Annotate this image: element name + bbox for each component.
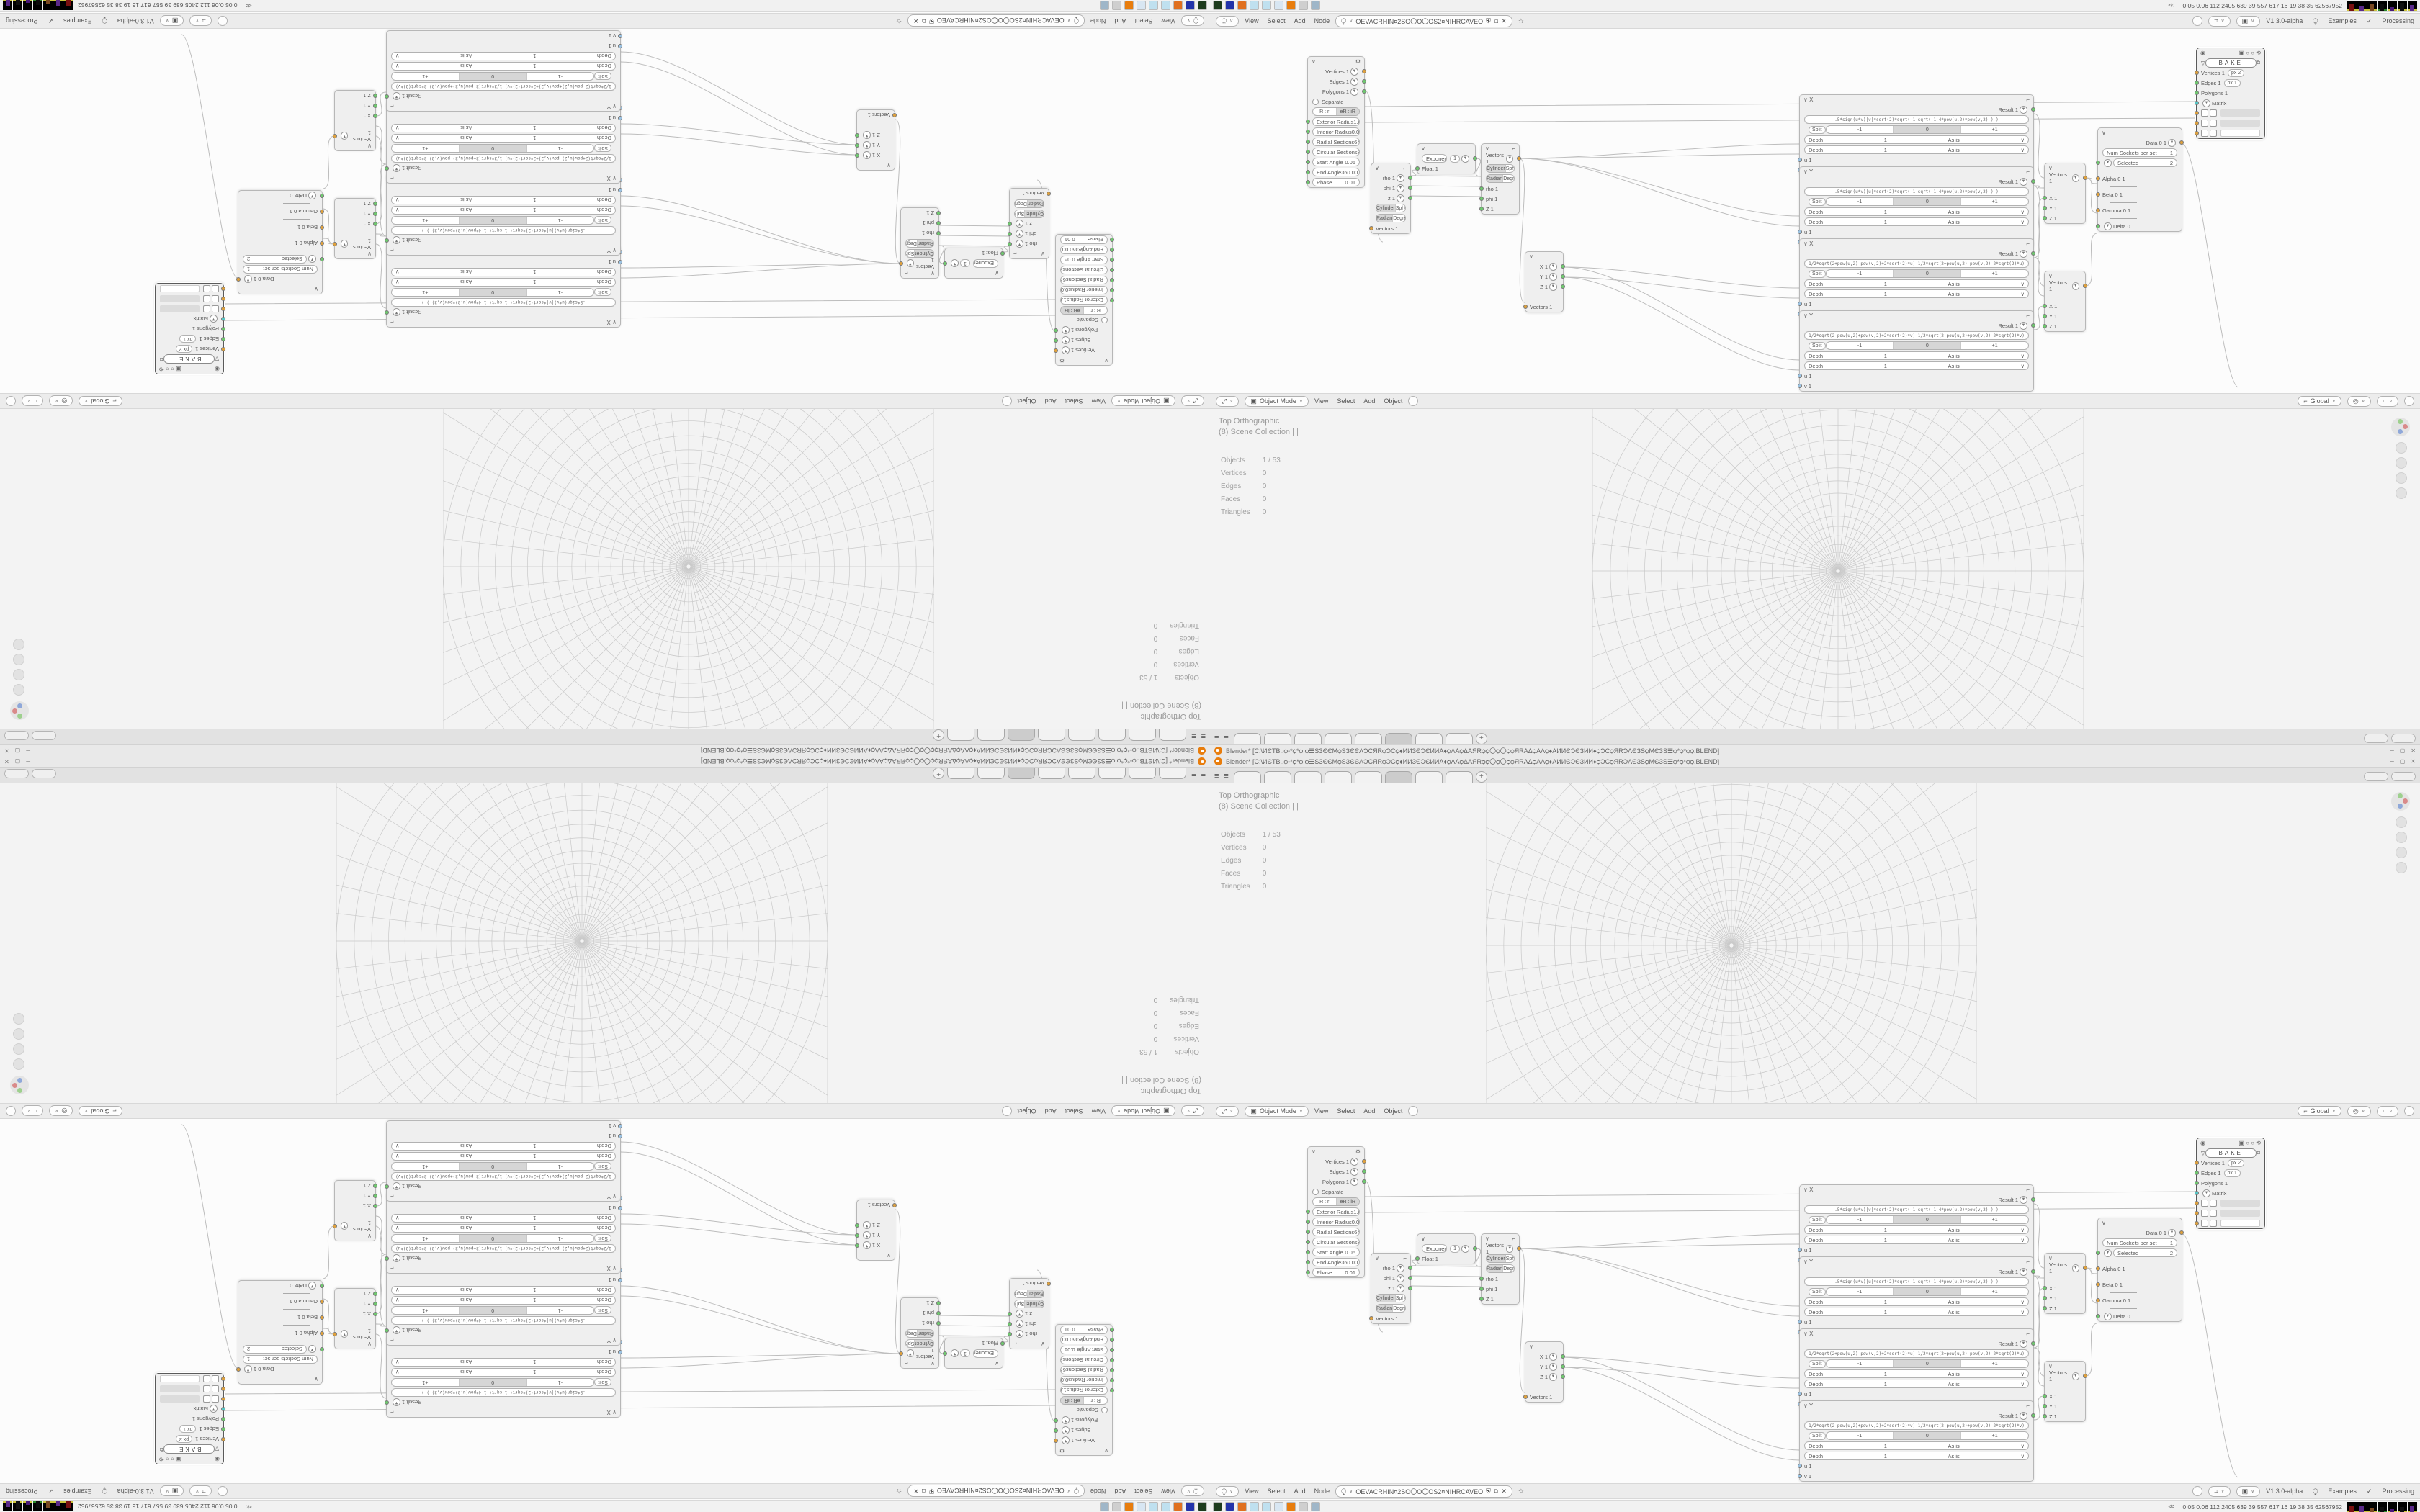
socket-dropdown-icon[interactable]: ▼	[863, 1242, 871, 1250]
node-menu-add[interactable]: Add	[1114, 1488, 1126, 1495]
bake-button[interactable]: BAKE	[2205, 58, 2257, 68]
workspace-tab[interactable]	[947, 768, 974, 779]
node-socket[interactable]	[2083, 1374, 2087, 1378]
menu-icon[interactable]: ≡	[1224, 772, 1228, 780]
preview-toggle-button[interactable]: ▣∨	[160, 1486, 184, 1497]
node-socket[interactable]	[1000, 1341, 1005, 1346]
node-socket[interactable]	[1110, 288, 1114, 292]
node-socket[interactable]	[1479, 197, 1484, 201]
node-socket[interactable]	[855, 1223, 859, 1228]
node-bake-selected[interactable]: ◉▣ ○ ○ ⟲▽BAKE⧉Vertices 1px 2Edges 1px 1P…	[2196, 1138, 2265, 1229]
viewlayer-selector[interactable]	[4, 731, 29, 740]
node-socket[interactable]	[1362, 1159, 1366, 1164]
node-socket[interactable]	[2096, 1314, 2100, 1318]
node-editor[interactable]: ∨ ⚙Vertices 1▼Edges 1▼Polygons 1▼Separat…	[0, 1119, 1210, 1483]
socket-dropdown-icon[interactable]: ▼	[951, 260, 959, 268]
socket-dropdown-icon[interactable]: ▼	[863, 132, 871, 140]
snap-button[interactable]: ◎∨	[49, 396, 73, 407]
window-title-bar[interactable]: Blender* [C:\ИЄТВ..ѻ◦*ѻ*ѻ:ѻ☰ЅЗЄЄМѻЅЗЄЄΛϽ…	[1210, 756, 2420, 768]
socket-dropdown-icon[interactable]: ▼	[1016, 230, 1023, 238]
node[interactable]: ∨ Data 0 1▼Num Sockets per set1▼Selected…	[238, 190, 323, 294]
flame-icon[interactable]	[1173, 1502, 1183, 1511]
node-socket[interactable]	[2195, 1201, 2199, 1205]
viewport-menu-object[interactable]: Object	[1018, 1107, 1036, 1115]
node-socket[interactable]	[1561, 1374, 1565, 1379]
node-socket[interactable]	[1561, 1354, 1565, 1359]
workspace-tab[interactable]	[977, 768, 1005, 779]
node-socket[interactable]	[1798, 384, 1802, 388]
minimize-button[interactable]: ─	[2390, 758, 2394, 765]
viewport-menu-add[interactable]: Add	[1045, 1107, 1057, 1115]
workspace-tab[interactable]	[1385, 733, 1412, 744]
speaker-icon[interactable]	[1112, 1502, 1121, 1511]
node-socket[interactable]	[899, 1351, 903, 1356]
window-icon[interactable]	[1137, 1, 1146, 10]
copy-icon[interactable]: ⧉	[922, 17, 926, 25]
workspace-tab[interactable]	[1098, 768, 1126, 779]
node[interactable]: ∨ Vectors 1▼X 1Y 1Z 1	[2044, 271, 2086, 332]
node-socket[interactable]	[320, 1347, 324, 1351]
socket-dropdown-icon[interactable]: ▼	[244, 1366, 252, 1374]
socket-dropdown-icon[interactable]: ▼	[1397, 1274, 1404, 1282]
viewport-menu-select[interactable]: Select	[1337, 1107, 1355, 1115]
notepad-icon[interactable]	[1149, 1502, 1158, 1511]
node-socket[interactable]	[221, 1407, 225, 1411]
node-socket[interactable]	[1523, 1395, 1528, 1399]
socket-dropdown-icon[interactable]: ▼	[341, 240, 348, 248]
node-menu-add[interactable]: Add	[1294, 17, 1306, 24]
node-socket[interactable]	[936, 1301, 941, 1305]
zoom-tool-icon[interactable]	[2396, 816, 2407, 828]
workspace-tab[interactable]	[1385, 771, 1412, 783]
workspace-tab[interactable]	[1159, 729, 1186, 741]
viewport-menu-object[interactable]: Object	[1384, 1107, 1402, 1115]
node[interactable]: ∨ Y⌐Result 1▼.5*sign(u*v)|u|*sqrt(2)*sqr…	[1799, 1256, 2034, 1338]
node-socket[interactable]	[1408, 1286, 1412, 1290]
node-socket[interactable]	[618, 1206, 622, 1210]
socket-dropdown-icon[interactable]: ▼	[210, 315, 218, 323]
node-tree-type-button[interactable]: ⧬∨	[1216, 16, 1239, 27]
node-socket[interactable]	[1008, 1332, 1012, 1336]
viewport-3d[interactable]: Top Orthographic (8) Scene Collection | …	[1210, 783, 2420, 1103]
node-bake-selected[interactable]: ◉▣ ○ ○ ⟲▽BAKE⧉Vertices 1px 2Edges 1px 1P…	[2196, 48, 2265, 139]
node[interactable]: ∨ ExponentialEaseIn∨1▼Float 1	[1417, 143, 1476, 174]
node[interactable]: ∨ Y⌐Result 1▼1/2*sqrt(2-pow(u,2)+pow(v,2…	[1799, 310, 2034, 392]
camera-view-icon[interactable]	[13, 1028, 24, 1040]
node-socket[interactable]	[373, 212, 377, 216]
node-socket[interactable]	[1110, 1368, 1114, 1372]
node[interactable]: ∨ X⌐Result 1▼.5*sign(u*v)|v|*sqrt(2)*sqr…	[386, 1336, 621, 1418]
node-socket[interactable]	[855, 1233, 859, 1238]
transform-orientation-selector[interactable]: ⌐Global∨	[2298, 1106, 2341, 1116]
node-tree-type-button[interactable]: ⧬∨	[1181, 16, 1204, 27]
node-socket[interactable]	[2031, 323, 2035, 328]
socket-dropdown-icon[interactable]: ▼	[308, 1346, 316, 1354]
node-socket[interactable]	[2031, 1197, 2035, 1202]
node-socket[interactable]	[221, 1397, 225, 1401]
node-menu-add[interactable]: Add	[1114, 17, 1126, 24]
node-socket[interactable]	[936, 1321, 941, 1326]
ortho-toggle-icon[interactable]	[2396, 487, 2407, 499]
node-socket[interactable]	[1110, 1338, 1114, 1342]
snap-button[interactable]: ◎∨	[2347, 1106, 2371, 1117]
viewport-menu-add[interactable]: Add	[1363, 1107, 1375, 1115]
node-socket[interactable]	[1054, 1439, 1058, 1443]
node-socket[interactable]	[2195, 71, 2199, 75]
socket-dropdown-icon[interactable]: ▼	[393, 93, 400, 101]
node-socket[interactable]	[1798, 374, 1802, 378]
workspace-tab[interactable]	[1264, 733, 1291, 744]
node[interactable]: ∨ ⌐Vectors 1▼CylinderSphereRadianDegreer…	[1481, 143, 1520, 215]
node[interactable]: ∨ ⚙Vertices 1▼Edges 1▼Polygons 1▼Separat…	[1055, 1324, 1113, 1456]
socket-dropdown-icon[interactable]: ▼	[1016, 1331, 1023, 1338]
node-socket[interactable]	[373, 1194, 377, 1198]
workspace-tab[interactable]	[1415, 771, 1443, 783]
node-socket[interactable]	[2096, 192, 2100, 197]
proportional-edit-button[interactable]: ⌗∨	[22, 1106, 43, 1117]
socket-dropdown-icon[interactable]: ▼	[1397, 1264, 1404, 1272]
add-workspace-button[interactable]: +	[933, 768, 944, 779]
viewport-menu-select[interactable]: Select	[1065, 1107, 1083, 1115]
socket-dropdown-icon[interactable]: ▼	[341, 1331, 348, 1338]
node-socket[interactable]	[892, 1203, 897, 1207]
socket-dropdown-icon[interactable]: ▼	[1397, 184, 1404, 192]
node-socket[interactable]	[2043, 304, 2047, 308]
monitor-icon[interactable]	[1311, 1, 1320, 10]
node-socket[interactable]	[1306, 1260, 1310, 1264]
node-socket[interactable]	[899, 261, 903, 266]
node-socket[interactable]	[1362, 1179, 1366, 1184]
node-socket[interactable]	[1008, 232, 1012, 236]
ortho-toggle-icon[interactable]	[2396, 862, 2407, 873]
node-socket[interactable]	[855, 153, 859, 158]
node-socket[interactable]	[373, 1302, 377, 1306]
workspace-tab[interactable]	[1234, 771, 1261, 783]
node[interactable]: ∨ Data 0 1▼Num Sockets per set1▼Selected…	[238, 1280, 323, 1385]
add-workspace-button[interactable]: +	[933, 729, 944, 741]
node-socket[interactable]	[373, 1292, 377, 1296]
node-socket[interactable]	[936, 1311, 941, 1315]
workspace-tab[interactable]	[1355, 771, 1382, 783]
node[interactable]: ∨ Data 0 1▼Num Sockets per set1▼Selected…	[2097, 127, 2182, 232]
copy-icon[interactable]: ⧉	[1494, 17, 1498, 25]
node-socket[interactable]	[618, 260, 622, 264]
node-socket[interactable]	[936, 231, 941, 235]
node[interactable]: ∨ ⌐Vectors 1▼CylinderSphereRadianDegreer…	[900, 207, 939, 279]
node-socket[interactable]	[2179, 140, 2184, 145]
node-socket[interactable]	[373, 114, 377, 118]
node-socket[interactable]	[1110, 1358, 1114, 1362]
node[interactable]: ∨ Y⌐Result 1▼1/2*sqrt(2-pow(u,2)+pow(v,2…	[1799, 1400, 2034, 1482]
node-socket[interactable]	[1479, 1287, 1484, 1291]
node-menu-node[interactable]: Node	[1090, 1488, 1106, 1495]
node-socket[interactable]	[855, 1243, 859, 1248]
node-socket[interactable]	[618, 1278, 622, 1282]
node-socket[interactable]	[1798, 158, 1802, 162]
examples-menu[interactable]: Examples	[63, 17, 92, 24]
node-socket[interactable]	[1306, 170, 1310, 174]
node-socket[interactable]	[1008, 1322, 1012, 1326]
expand-icon[interactable]: ≪	[2168, 1503, 2174, 1511]
zoom-tool-icon[interactable]	[2396, 442, 2407, 454]
menu-icon[interactable]: ≡	[1224, 734, 1228, 742]
node-menu-view[interactable]: View	[1161, 1488, 1175, 1495]
node-socket[interactable]	[1561, 264, 1565, 269]
pin-icon[interactable]: ☆	[896, 17, 902, 25]
node-socket[interactable]	[2195, 121, 2199, 125]
node-tree-id-field[interactable]: ⧬∨ OEVACRHIN¤2SO〇O〇OS2¤NIHRCAVEO ⛨ ⧉ ✕	[1335, 15, 1512, 27]
pin-icon[interactable]: ☆	[1518, 17, 1524, 25]
socket-dropdown-icon[interactable]: ▼	[244, 276, 252, 284]
node-socket[interactable]	[2031, 1341, 2035, 1346]
pin-icon[interactable]: ☆	[896, 1488, 902, 1495]
workspace-tab[interactable]	[977, 729, 1005, 741]
node-socket[interactable]	[2195, 1181, 2199, 1185]
socket-dropdown-icon[interactable]: ▼	[2020, 322, 2027, 330]
node-socket[interactable]	[1054, 1428, 1058, 1433]
close-button[interactable]: ✕	[2411, 747, 2416, 754]
workspace-tab[interactable]	[1098, 729, 1126, 741]
node-menu-select[interactable]: Select	[1134, 17, 1152, 24]
node-socket[interactable]	[2096, 208, 2100, 212]
navigation-gizmo[interactable]	[10, 701, 29, 720]
node-socket[interactable]	[618, 1124, 622, 1128]
node-socket[interactable]	[2195, 1211, 2199, 1215]
node-socket[interactable]	[2043, 1306, 2047, 1310]
overlays-button[interactable]	[6, 396, 16, 406]
node[interactable]: ∨ Vectors 1▼X 1Y 1Z 1	[334, 1288, 376, 1349]
node-socket[interactable]	[2096, 176, 2100, 181]
socket-dropdown-icon[interactable]: ▼	[393, 1183, 400, 1191]
bake-button[interactable]: BAKE	[163, 355, 215, 364]
socket-dropdown-icon[interactable]: ▼	[1549, 263, 1557, 271]
node[interactable]: ∨ Y⌐Result 1▼1/2*sqrt(2-pow(u,2)+pow(v,2…	[386, 30, 621, 112]
node-socket[interactable]	[2195, 131, 2199, 135]
socket-dropdown-icon[interactable]: ▼	[2020, 1268, 2027, 1276]
socket-dropdown-icon[interactable]: ▼	[863, 1222, 871, 1230]
node-socket[interactable]	[1110, 1328, 1114, 1332]
speaker-icon[interactable]	[1299, 1, 1308, 10]
blender-icon[interactable]	[1124, 1, 1134, 10]
socket-dropdown-icon[interactable]: ▼	[2020, 106, 2027, 114]
workspace-tab[interactable]	[947, 729, 974, 741]
socket-dropdown-icon[interactable]: ▼	[393, 1399, 400, 1407]
node-socket[interactable]	[1008, 242, 1012, 246]
node-socket[interactable]	[320, 257, 324, 261]
socket-dropdown-icon[interactable]: ▼	[393, 309, 400, 317]
overlays-button[interactable]	[6, 1106, 16, 1116]
node-socket[interactable]	[320, 1284, 324, 1288]
bake-button[interactable]: BAKE	[2205, 1148, 2257, 1158]
node-socket[interactable]	[1047, 192, 1051, 196]
node[interactable]: ∨ Y⌐Result 1▼.5*sign(u*v)|u|*sqrt(2)*sqr…	[386, 1264, 621, 1346]
node-socket[interactable]	[1798, 1248, 1802, 1252]
window-title-bar[interactable]: Blender* [C:\ИЄТВ..ѻ◦*ѻ*ѻ:ѻ☰ЅЗЄЄМѻЅЗЄЄΛϽ…	[0, 756, 1210, 768]
fake-user-icon[interactable]: ⛨	[1486, 17, 1491, 25]
monitor-icon[interactable]	[1100, 1, 1109, 10]
socket-dropdown-icon[interactable]: ▼	[1506, 155, 1513, 163]
node-socket[interactable]	[221, 1377, 225, 1381]
socket-dropdown-icon[interactable]: ▼	[2202, 1189, 2210, 1197]
workspace-tab[interactable]	[1068, 729, 1095, 741]
speaker-icon[interactable]	[1112, 1, 1121, 10]
zoom-tool-icon[interactable]	[13, 1058, 24, 1070]
mode-selector[interactable]: ▣Object Mode∨	[1245, 1106, 1309, 1117]
snap-button[interactable]: ◎∨	[49, 1106, 73, 1117]
node-socket[interactable]	[385, 310, 389, 315]
node-socket[interactable]	[1306, 120, 1310, 124]
node-socket[interactable]	[320, 1300, 324, 1304]
workspace-tab[interactable]	[1038, 729, 1065, 741]
node-socket[interactable]	[2096, 1282, 2100, 1287]
node-socket[interactable]	[1561, 1364, 1565, 1369]
transform-orientation-selector[interactable]: ⌐Global∨	[2298, 396, 2341, 406]
viewport-menu-object[interactable]: Object	[1384, 397, 1402, 405]
node-bake-selected[interactable]: ◉▣ ○ ○ ⟲▽BAKE⧉Vertices 1px 2Edges 1px 1P…	[155, 283, 224, 374]
node-socket[interactable]	[373, 222, 377, 226]
workspace-tab[interactable]	[1159, 768, 1186, 779]
terminal-icon[interactable]	[1198, 1502, 1207, 1511]
search-button[interactable]	[1002, 396, 1012, 406]
node-socket[interactable]	[943, 1351, 947, 1356]
proportional-edit-button[interactable]: ⌗∨	[2377, 1106, 2398, 1117]
node-socket[interactable]	[2096, 1251, 2100, 1255]
node-tree-type-button[interactable]: ⧬∨	[1216, 1486, 1239, 1497]
node-socket[interactable]	[1306, 130, 1310, 134]
viewport-3d[interactable]: Top Orthographic (8) Scene Collection | …	[1210, 409, 2420, 729]
node-socket[interactable]	[1362, 79, 1366, 84]
socket-dropdown-icon[interactable]: ▼	[2202, 99, 2210, 107]
node-socket[interactable]	[385, 94, 389, 99]
socket-dropdown-icon[interactable]: ▼	[1350, 1178, 1358, 1186]
ortho-toggle-icon[interactable]	[13, 1013, 24, 1025]
node-socket[interactable]	[936, 211, 941, 215]
socket-dropdown-icon[interactable]: ▼	[1350, 1168, 1358, 1176]
node-socket[interactable]	[1008, 1312, 1012, 1316]
node-socket[interactable]	[1362, 89, 1366, 94]
node[interactable]: ∨ Vectors 1▼X 1Y 1Z 1	[334, 198, 376, 259]
node-socket[interactable]	[385, 1328, 389, 1333]
socket-dropdown-icon[interactable]: ▼	[1397, 1284, 1404, 1292]
node[interactable]: ∨ ExponentialEaseIn∨1▼Float 1	[944, 248, 1003, 279]
copy-icon[interactable]: ⧉	[1494, 1488, 1498, 1495]
socket-dropdown-icon[interactable]: ▼	[1062, 337, 1070, 345]
socket-dropdown-icon[interactable]: ▼	[2104, 1249, 2112, 1257]
unlink-icon[interactable]: ✕	[913, 1488, 919, 1495]
workspace-tab[interactable]	[1008, 768, 1035, 779]
node[interactable]: ∨ ExponentialEaseIn∨1▼Float 1	[1417, 1233, 1476, 1264]
socket-dropdown-icon[interactable]: ▼	[1397, 194, 1404, 202]
search-button[interactable]	[1408, 396, 1418, 406]
node-socket[interactable]	[618, 44, 622, 48]
viewport-menu-select[interactable]: Select	[1065, 397, 1083, 405]
node-menu-view[interactable]: View	[1245, 17, 1258, 24]
node[interactable]: ∨ Vectors 1▼X 1Y 1Z 1	[334, 90, 376, 151]
node-socket[interactable]	[221, 1417, 225, 1421]
node-socket[interactable]	[618, 34, 622, 38]
expand-icon[interactable]: ≪	[2168, 1, 2174, 9]
node[interactable]: ∨ Y⌐Result 1▼.5*sign(u*v)|u|*sqrt(2)*sqr…	[1799, 166, 2034, 248]
monitor-icon[interactable]	[1311, 1502, 1320, 1511]
editor-type-button[interactable]: ⤢∨	[1216, 1106, 1239, 1117]
close-button[interactable]: ✕	[4, 758, 9, 765]
socket-dropdown-icon[interactable]: ▼	[1350, 88, 1358, 96]
node-socket[interactable]	[2031, 179, 2035, 184]
scene-selector[interactable]	[2364, 772, 2388, 781]
workspace-tab[interactable]	[1355, 733, 1382, 744]
node-socket[interactable]	[373, 1204, 377, 1208]
node-socket[interactable]	[2083, 176, 2087, 180]
node-socket[interactable]	[1479, 207, 1484, 211]
socket-dropdown-icon[interactable]: ▼	[2168, 139, 2176, 147]
node-socket[interactable]	[385, 166, 389, 171]
node-socket[interactable]	[2096, 224, 2100, 228]
socket-dropdown-icon[interactable]: ▼	[1016, 1310, 1023, 1318]
close-button[interactable]: ✕	[2411, 758, 2416, 765]
overlay-toggle-button[interactable]: ⌗∨	[2208, 16, 2230, 27]
window-title-bar[interactable]: Blender* [C:\ИЄТВ..ѻ◦*ѻ*ѻ:ѻ☰ЅЗЄЄМѻЅЗЄЄΛϽ…	[0, 744, 1210, 756]
fake-user-icon[interactable]: ⛨	[929, 1488, 934, 1495]
node[interactable]: ∨ X⌐Result 1▼1/2*sqrt(2+pow(u,2)-pow(v,2…	[1799, 238, 2034, 320]
node[interactable]: ∨ ⚙Vertices 1▼Edges 1▼Polygons 1▼Separat…	[1307, 56, 1365, 188]
node[interactable]: ∨ ⚙Vertices 1▼Edges 1▼Polygons 1▼Separat…	[1055, 234, 1113, 366]
socket-dropdown-icon[interactable]: ▼	[2020, 1196, 2027, 1204]
node[interactable]: ∨ ⌐Vectors 1▼CylinderSphereRadianDegreer…	[1481, 1233, 1520, 1305]
workspace-tab[interactable]	[1446, 771, 1473, 783]
viewport-menu-view[interactable]: View	[1314, 397, 1328, 405]
node-socket[interactable]	[385, 1256, 389, 1261]
workspace-tab[interactable]	[1415, 733, 1443, 744]
socket-dropdown-icon[interactable]: ▼	[2104, 1313, 2112, 1320]
socket-dropdown-icon[interactable]: ▼	[1062, 1417, 1070, 1425]
node-socket[interactable]	[1561, 284, 1565, 289]
node-socket[interactable]	[1110, 278, 1114, 282]
notepad-icon[interactable]	[1250, 1, 1259, 10]
node[interactable]: ∨ Y⌐Result 1▼1/2*sqrt(2-pow(u,2)+pow(v,2…	[386, 1120, 621, 1202]
node-tree-id-field[interactable]: ⧬∨ OEVACRHIN¤2SO〇O〇OS2¤NIHRCAVEO ⛨ ⧉ ✕	[907, 1485, 1085, 1498]
socket-dropdown-icon[interactable]: ▼	[2168, 1229, 2176, 1237]
viewport-menu-add[interactable]: Add	[1045, 397, 1057, 405]
node-socket[interactable]	[2096, 1298, 2100, 1302]
socket-dropdown-icon[interactable]: ▼	[1549, 273, 1557, 281]
workspace-tab[interactable]	[1129, 768, 1156, 779]
notepad-icon[interactable]	[1262, 1, 1271, 10]
node-socket[interactable]	[2043, 314, 2047, 318]
node-socket[interactable]	[320, 241, 324, 246]
node-editor[interactable]: ∨ ⚙Vertices 1▼Edges 1▼Polygons 1▼Separat…	[1210, 1119, 2420, 1483]
node-socket[interactable]	[2083, 284, 2087, 288]
node-socket[interactable]	[1054, 338, 1058, 343]
node-socket[interactable]	[1369, 226, 1373, 230]
close-button[interactable]: ✕	[4, 747, 9, 754]
node-socket[interactable]	[1408, 1276, 1412, 1280]
node-socket[interactable]	[1306, 160, 1310, 164]
socket-dropdown-icon[interactable]: ▼	[863, 152, 871, 160]
snap-button[interactable]: ◎∨	[2347, 396, 2371, 407]
node-socket[interactable]	[333, 1224, 337, 1228]
pan-tool-icon[interactable]	[13, 1043, 24, 1055]
socket-dropdown-icon[interactable]: ▼	[2072, 174, 2079, 182]
examples-menu[interactable]: Examples	[2328, 17, 2357, 24]
node-socket[interactable]	[2195, 1191, 2199, 1195]
node-socket[interactable]	[1415, 1256, 1420, 1261]
workspace-tab[interactable]	[1234, 733, 1261, 744]
unlink-icon[interactable]: ✕	[913, 17, 919, 25]
preview-toggle-button[interactable]: ▣∨	[2236, 16, 2261, 27]
node-socket[interactable]	[1798, 1392, 1802, 1396]
copy-icon[interactable]: ⧉	[922, 1488, 926, 1495]
node-menu-add[interactable]: Add	[1294, 1488, 1306, 1495]
